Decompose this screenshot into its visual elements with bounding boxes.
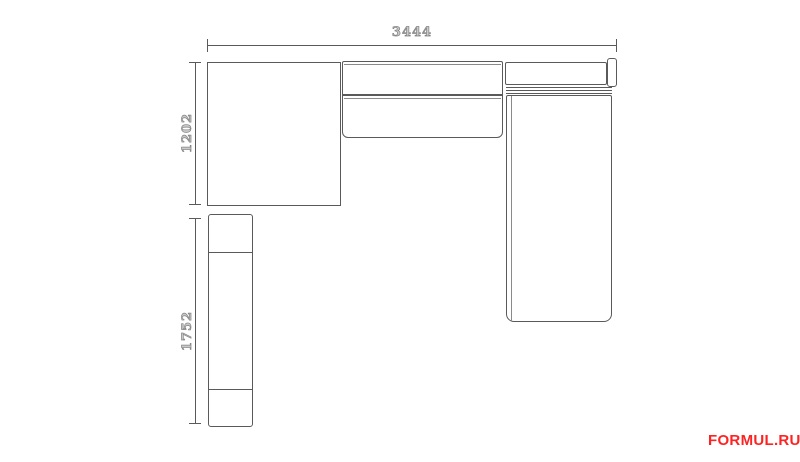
left-upper-dimension-tick-bottom (189, 204, 201, 205)
top-dimension-tick-left (207, 39, 208, 52)
center-sofa-seat (342, 95, 503, 138)
left-lower-dimension-tick-bottom (189, 423, 201, 424)
furniture-plan-canvas: 3444 1202 1752 FORMUL.RU (0, 0, 800, 462)
right-backrest-bar (505, 62, 607, 85)
left-lower-dimension-label: 1752 (181, 301, 195, 361)
center-sofa-seat-divider (344, 98, 501, 99)
right-chaise-module (506, 95, 612, 322)
left-upper-dimension-line (195, 62, 196, 205)
corner-module (207, 62, 341, 206)
left-lower-dimension-tick-top (189, 218, 201, 219)
center-sofa-backrest-inner-line (344, 64, 501, 65)
left-sofa-module (208, 214, 253, 427)
right-backrest-stripe (506, 90, 612, 91)
left-lower-dimension-line (195, 218, 196, 424)
left-upper-dimension-label: 1202 (181, 103, 195, 163)
top-dimension-tick-right (616, 39, 617, 52)
top-dimension-label: 3444 (382, 26, 442, 40)
watermark-text: FORMUL.RU (708, 432, 798, 449)
left-sofa-divider-top (209, 252, 252, 253)
right-chaise-inner-line (511, 96, 512, 321)
right-armrest-endcap (607, 58, 617, 87)
right-backrest-stripe (506, 87, 612, 88)
top-dimension-line (207, 45, 617, 46)
right-backrest-stripe (506, 93, 612, 94)
center-sofa-backrest (342, 61, 503, 95)
left-sofa-divider-bottom (209, 389, 252, 390)
left-upper-dimension-tick-top (189, 62, 201, 63)
